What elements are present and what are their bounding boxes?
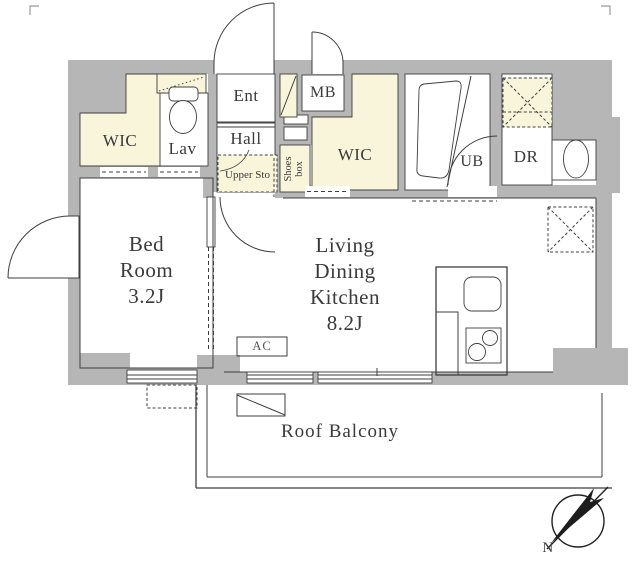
room-label-ldk-line2: Dining — [262, 258, 428, 284]
room-label-wic-1: WIC — [80, 131, 160, 151]
room-label-dressing-room: DR — [500, 147, 552, 167]
room-label-ldk-size: 8.2J — [262, 310, 428, 336]
room-label-ldk: Living Dining Kitchen 8.2J — [262, 232, 428, 336]
label-shoes-box-line2: box — [294, 143, 305, 195]
kitchen-counter — [436, 267, 507, 375]
floor-plan: WIC Lav Ent Hall Upper Sto Shoes box MB … — [0, 0, 640, 562]
room-label-hall: Hall — [217, 129, 275, 149]
room-label-unit-bath: UB — [450, 153, 494, 171]
washbasin-icon — [564, 140, 589, 178]
room-label-wic-2: WIC — [312, 145, 398, 165]
room-label-entrance: Ent — [217, 86, 275, 106]
label-roof-balcony: Roof Balcony — [240, 421, 440, 443]
room-label-ldk-line3: Kitchen — [262, 284, 428, 310]
label-ac: AC — [237, 339, 287, 353]
label-shoes-box-line1: Shoes — [283, 143, 294, 195]
refrigerator-space-icon — [548, 207, 593, 252]
label-compass-north: N — [536, 540, 560, 557]
label-meter-box: MB — [302, 84, 344, 102]
label-upper-storage: Upper Sto — [218, 169, 277, 182]
toilet-icon — [169, 87, 198, 134]
stove-burner-icon — [469, 344, 486, 361]
room-label-bedroom-size: 3.2J — [80, 283, 213, 309]
room-label-bedroom-line2: Room — [80, 257, 213, 283]
label-shoes-box: Shoes box — [283, 143, 307, 195]
room-label-ldk-line1: Living — [262, 232, 428, 258]
stove-burner-icon — [483, 331, 498, 346]
room-label-bedroom: Bed Room 3.2J — [80, 231, 213, 309]
corner-marks — [30, 6, 610, 15]
ac-outdoor-unit-icon — [237, 394, 285, 416]
windows — [127, 368, 432, 383]
room-label-bedroom-line1: Bed — [80, 231, 213, 257]
room-label-lav: Lav — [157, 139, 208, 159]
